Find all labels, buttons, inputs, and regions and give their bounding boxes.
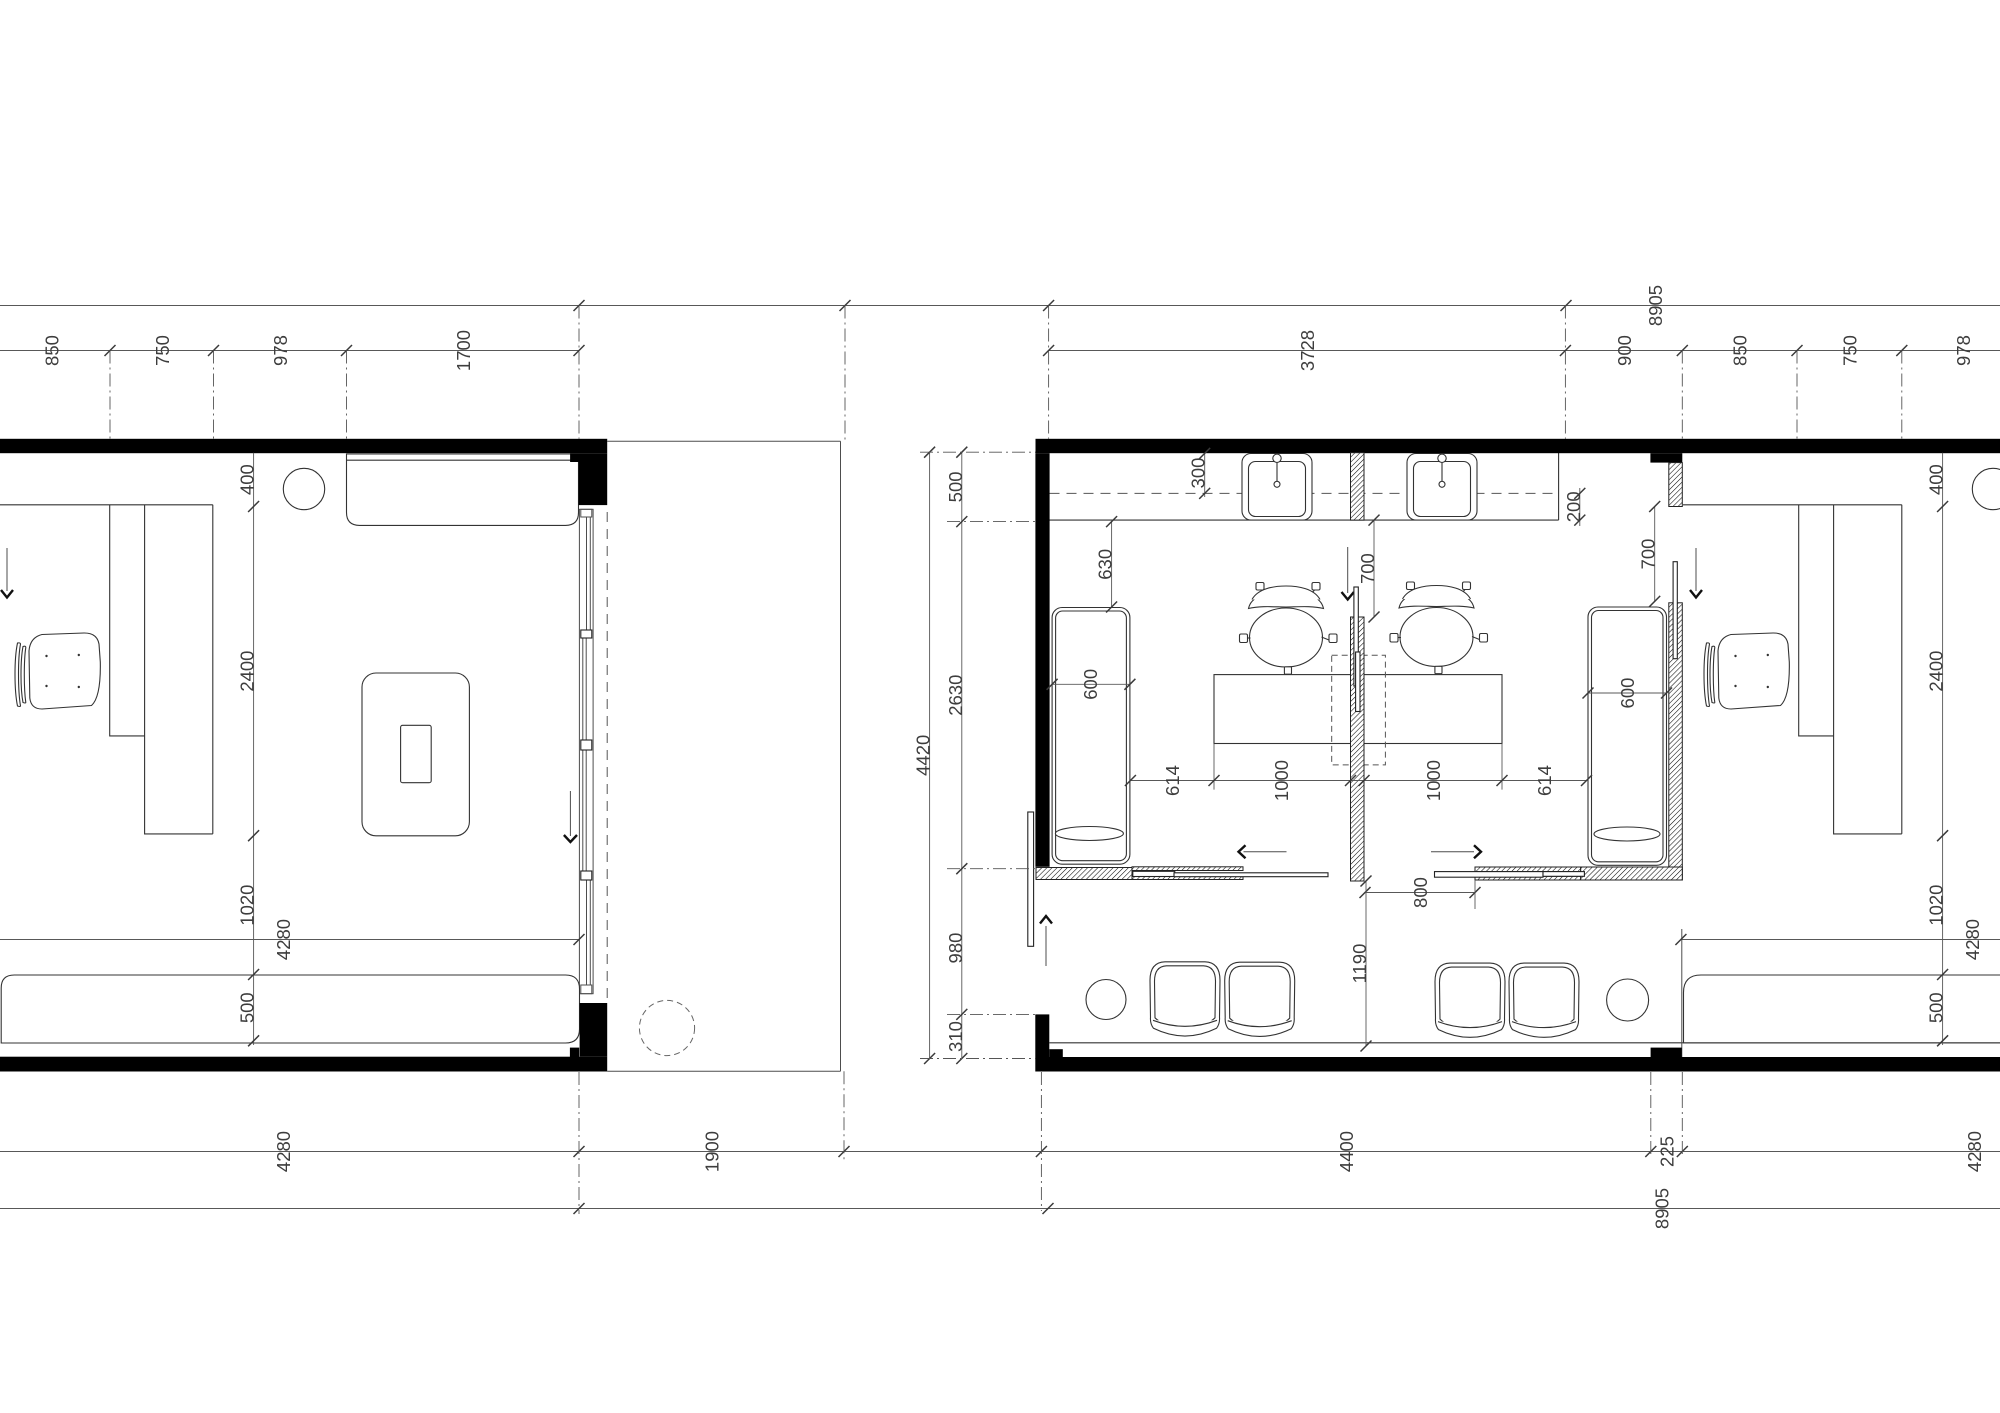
- svg-text:310: 310: [945, 1021, 966, 1052]
- svg-text:850: 850: [42, 335, 63, 366]
- svg-text:2400: 2400: [1926, 651, 1947, 692]
- svg-text:400: 400: [237, 464, 258, 495]
- svg-text:2400: 2400: [237, 651, 258, 692]
- svg-text:750: 750: [152, 335, 173, 366]
- svg-text:1900: 1900: [702, 1131, 723, 1172]
- svg-text:850: 850: [1730, 335, 1751, 366]
- svg-text:1190: 1190: [1349, 944, 1370, 984]
- svg-text:978: 978: [1953, 335, 1974, 366]
- svg-text:4400: 4400: [1336, 1131, 1357, 1172]
- svg-text:700: 700: [1357, 553, 1378, 584]
- svg-text:4420: 4420: [913, 735, 934, 776]
- svg-text:4280: 4280: [273, 1131, 294, 1172]
- svg-text:630: 630: [1095, 549, 1116, 580]
- svg-text:900: 900: [1614, 335, 1635, 366]
- svg-text:978: 978: [270, 335, 291, 366]
- svg-text:200: 200: [1563, 491, 1584, 522]
- svg-text:400: 400: [1926, 464, 1947, 495]
- svg-text:225: 225: [1657, 1136, 1678, 1167]
- svg-text:1020: 1020: [237, 885, 258, 926]
- svg-text:500: 500: [945, 471, 966, 502]
- svg-text:750: 750: [1839, 335, 1860, 366]
- svg-text:4280: 4280: [273, 919, 294, 960]
- svg-text:2630: 2630: [945, 675, 966, 716]
- svg-text:4280: 4280: [1962, 919, 1983, 960]
- svg-text:300: 300: [1188, 458, 1209, 489]
- svg-text:8905: 8905: [1645, 285, 1666, 326]
- svg-text:1700: 1700: [453, 330, 474, 371]
- svg-text:500: 500: [1926, 992, 1947, 1023]
- svg-text:500: 500: [237, 992, 258, 1023]
- svg-text:4280: 4280: [1964, 1131, 1985, 1172]
- svg-text:614: 614: [1534, 765, 1555, 796]
- svg-text:700: 700: [1638, 539, 1659, 570]
- svg-text:8905: 8905: [1652, 1188, 1673, 1229]
- svg-text:1020: 1020: [1926, 885, 1947, 926]
- svg-text:980: 980: [945, 933, 966, 964]
- svg-text:600: 600: [1080, 669, 1101, 700]
- svg-text:3728: 3728: [1297, 330, 1318, 371]
- svg-text:600: 600: [1617, 678, 1638, 709]
- svg-text:1000: 1000: [1271, 760, 1292, 801]
- svg-text:614: 614: [1162, 765, 1183, 796]
- svg-text:1000: 1000: [1423, 760, 1444, 801]
- svg-text:800: 800: [1410, 877, 1431, 908]
